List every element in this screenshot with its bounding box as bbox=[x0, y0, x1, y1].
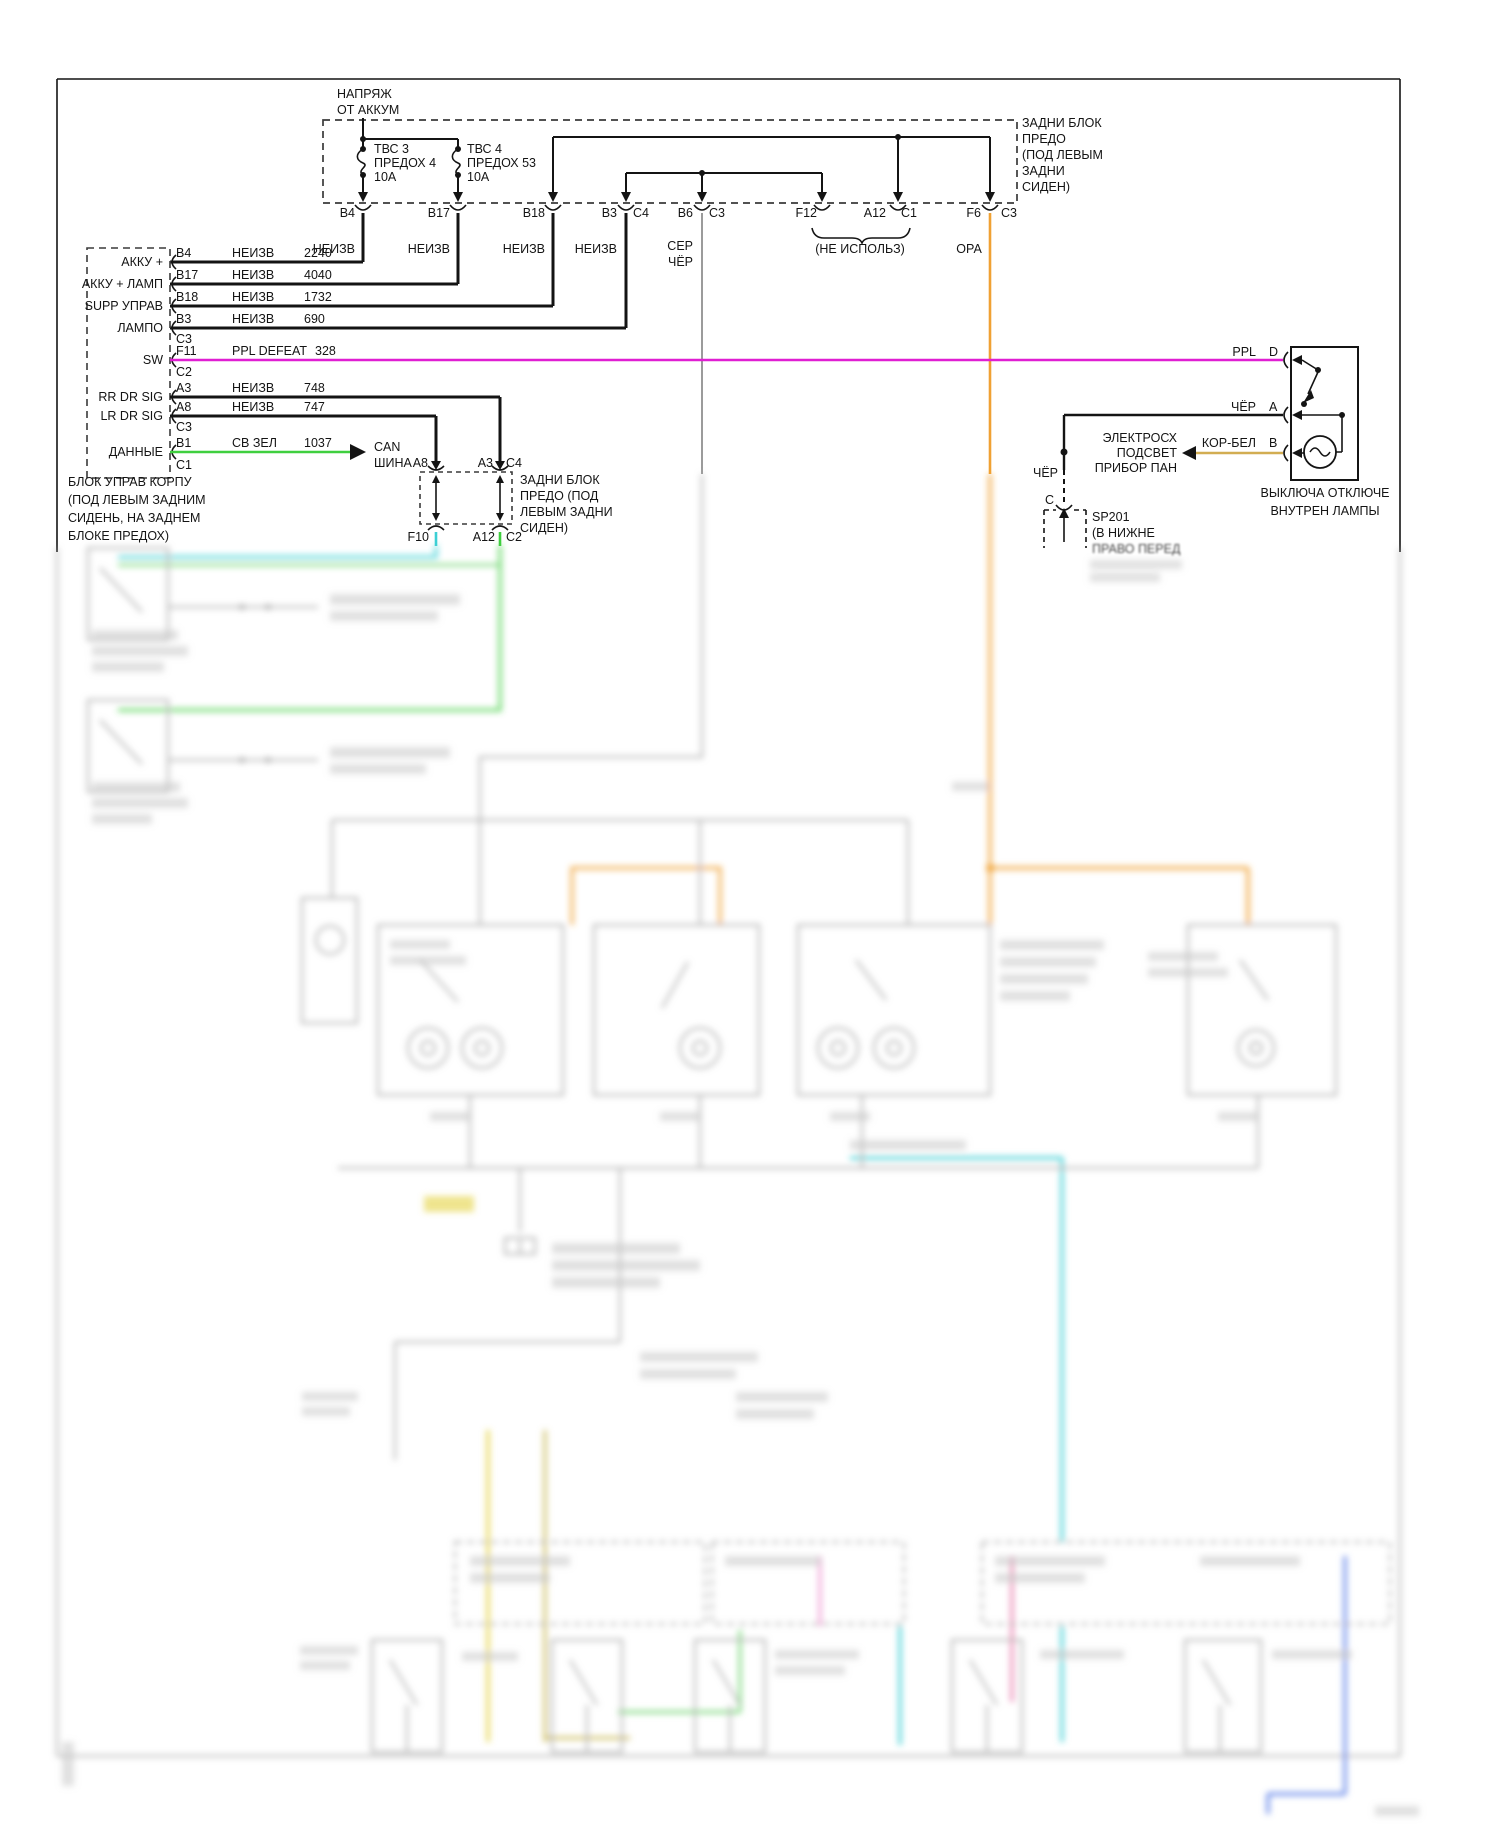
fuse-block-wire-colors-label-1: НЕИЗВ bbox=[408, 242, 450, 256]
switch-caption: ВЫКЛЮЧА ОТКЛЮЧЕВНУТРЕН ЛАМПЫ bbox=[1261, 486, 1390, 518]
fuse2-id: ПРЕДОХ 53 bbox=[467, 156, 536, 170]
bcm-rows-label-0: B4 bbox=[176, 246, 191, 260]
fuse1-rating: 10А bbox=[374, 170, 397, 184]
not-used-brace bbox=[812, 228, 910, 243]
ground-sp201-label-3: (В НИЖНЕ bbox=[1092, 526, 1155, 540]
bcm-rows-label-11: 690 bbox=[304, 312, 325, 326]
can-bus: CANШИНА bbox=[374, 440, 412, 470]
rear-fuse-block-label-label-4: СИДЕН) bbox=[1022, 180, 1070, 194]
offpage-arrow-icon bbox=[1182, 446, 1196, 460]
bcm-caption-label-3: БЛОКЕ ПРЕДОХ) bbox=[68, 529, 169, 543]
bcm-rows-label-15: 328 bbox=[315, 344, 336, 358]
fuse-block-wire-colors-label-3: НЕИЗВ bbox=[575, 242, 617, 256]
bcm-rows-label-9: B3 bbox=[176, 312, 191, 326]
panel-lamps-arrow-label-0: ЭЛЕКТРОСХ bbox=[1103, 431, 1178, 445]
mid-connector-label-label-3: СИДЕН) bbox=[520, 521, 568, 535]
fuse-block-wire-colors-label-6: (НЕ ИСПОЛЬЗ) bbox=[815, 242, 905, 256]
bcm-rows-label-17: A3 bbox=[176, 381, 191, 395]
bcm-rows-label-2: 2240 bbox=[304, 246, 332, 260]
bcm-signals-label-6: LR DR SIG bbox=[100, 409, 163, 423]
bcm-caption: БЛОК УПРАВ КОРПУ(ПОД ЛЕВЫМ ЗАДНИМСИДЕНЬ,… bbox=[68, 475, 206, 543]
dome-defeat-switch bbox=[1284, 347, 1358, 480]
fuse-block-wire-colors-label-7: ОРА bbox=[956, 242, 982, 256]
fuses: ТВС 3ПРЕДОХ 410АТВС 4ПРЕДОХ 5310А bbox=[374, 142, 536, 184]
panel-lamps-arrow-label-2: ПРИБОР ПАН bbox=[1095, 461, 1177, 475]
bcm-rows-label-19: 748 bbox=[304, 381, 325, 395]
bcm-rows-label-23: C3 bbox=[176, 420, 192, 434]
bcm-signals-label-4: SW bbox=[143, 353, 163, 367]
ground-sp201-label-0: ЧЁР bbox=[1033, 466, 1058, 480]
bcm-rows-label-4: НЕИЗВ bbox=[232, 268, 274, 282]
mid-connector-pins-label-0: A8 bbox=[413, 456, 428, 470]
mid-connector-pins-label-3: F10 bbox=[407, 530, 429, 544]
rear-fuse-block-label: ЗАДНИ БЛОКПРЕДО(ПОД ЛЕВЫМЗАДНИСИДЕН) bbox=[1022, 116, 1103, 194]
rear-fuse-block bbox=[323, 118, 1017, 243]
switch-pins-label-5: B bbox=[1269, 436, 1277, 450]
bcm-rows-label-21: НЕИЗВ bbox=[232, 400, 274, 414]
switch-caption-label-0: ВЫКЛЮЧА ОТКЛЮЧЕ bbox=[1261, 486, 1390, 500]
bcm-rows-label-24: B1 bbox=[176, 436, 191, 450]
fuse-block-pin-arrows bbox=[358, 192, 995, 202]
fuse-block-pins-label-8: A12 bbox=[864, 206, 886, 220]
ground-sp201-label-2: SP201 bbox=[1092, 510, 1130, 524]
bcm-signals-label-0: АККУ + bbox=[121, 255, 163, 269]
switch-pins-label-4: КОР-БЕЛ bbox=[1202, 436, 1256, 450]
bcm-rows-label-6: B18 bbox=[176, 290, 198, 304]
fuse-block-pins-label-6: C3 bbox=[709, 206, 725, 220]
bus-b18-f6 bbox=[553, 137, 990, 192]
bcm-rows-label-10: НЕИЗВ bbox=[232, 312, 274, 326]
mid-connector-pins-label-2: C4 bbox=[506, 456, 522, 470]
fuse1-id: ПРЕДОХ 4 bbox=[374, 156, 436, 170]
bcm-rows-label-26: 1037 bbox=[304, 436, 332, 450]
fuse-block-pins-label-10: F6 bbox=[966, 206, 981, 220]
rear-fuse-block-label-label-2: (ПОД ЛЕВЫМ bbox=[1022, 148, 1103, 162]
bcm-rows-label-13: F11 bbox=[176, 344, 197, 358]
bcm-caption-label-2: СИДЕНЬ, НА ЗАДНЕМ bbox=[68, 511, 200, 525]
bcm-rows-label-25: СВ ЗЕЛ bbox=[232, 436, 277, 450]
fuse-block-wire-colors-label-4: СЕР bbox=[667, 239, 693, 253]
bcm-rows-label-3: B17 bbox=[176, 268, 198, 282]
rear-fuse-block-label-label-0: ЗАДНИ БЛОК bbox=[1022, 116, 1102, 130]
lamp-icon bbox=[1304, 436, 1336, 468]
fuse-block-pins-label-5: B6 bbox=[678, 206, 693, 220]
bcm-rows-label-7: НЕИЗВ bbox=[232, 290, 274, 304]
blurred-lower-diagram bbox=[57, 474, 1419, 1816]
ground-sp201: ЧЁРCSP201(В НИЖНЕПРАВО ПЕРЕД bbox=[1033, 466, 1181, 556]
can-bus-label-1: ШИНА bbox=[374, 456, 412, 470]
fuse2-rating: 10А bbox=[467, 170, 490, 184]
bus-b3-f12 bbox=[626, 173, 822, 192]
ground-sp201-label-4: ПРАВО ПЕРЕД bbox=[1092, 542, 1181, 556]
battery-feed: НАПРЯЖОТ АККУМ bbox=[337, 87, 399, 117]
bcm-rows-label-16: C2 bbox=[176, 365, 192, 379]
panel-lamps-arrow-label-1: ПОДСВЕТ bbox=[1117, 446, 1178, 460]
battery-feed-line1: НАПРЯЖ bbox=[337, 87, 392, 101]
bcm-signals: АККУ +АККУ + ЛАМПSUPP УПРАВЛАМПОSWRR DR … bbox=[82, 255, 163, 459]
battery-feed-line2: ОТ АККУМ bbox=[337, 103, 399, 117]
diagram-text-layer: НАПРЯЖОТ АККУМТВС 3ПРЕДОХ 410АТВС 4ПРЕДО… bbox=[68, 87, 1389, 556]
fuse-block-pins-label-7: F12 bbox=[795, 206, 817, 220]
switch-pins-label-2: ЧЁР bbox=[1231, 400, 1256, 414]
mid-connector-label-label-0: ЗАДНИ БЛОК bbox=[520, 473, 600, 487]
fuse-symbol-tbc3 bbox=[357, 146, 366, 192]
bcm-rows-label-20: A8 bbox=[176, 400, 191, 414]
bcm-rows-label-27: C1 bbox=[176, 458, 192, 472]
panel-lamps-arrow: ЭЛЕКТРОСХПОДСВЕТПРИБОР ПАН bbox=[1095, 431, 1178, 475]
bcm-rows-label-22: 747 bbox=[304, 400, 325, 414]
fuse1-name: ТВС 3 bbox=[374, 142, 409, 156]
mid-connector-label: ЗАДНИ БЛОКПРЕДО (ПОДЛЕВЫМ ЗАДНИСИДЕН) bbox=[520, 473, 613, 535]
bcm-signals-label-3: ЛАМПО bbox=[117, 321, 163, 335]
switch-caption-label-1: ВНУТРЕН ЛАМПЫ bbox=[1270, 504, 1379, 518]
mid-connector bbox=[420, 466, 512, 546]
fuse-block-pins: B4B17B18B3C4B6C3F12A12C1F6C3 bbox=[340, 206, 1017, 220]
fuse-block-pins-label-11: C3 bbox=[1001, 206, 1017, 220]
bcm-caption-label-1: (ПОД ЛЕВЫМ ЗАДНИМ bbox=[68, 493, 206, 507]
fuse-block-pins-label-1: B17 bbox=[428, 206, 450, 220]
bcm-rows-label-5: 4040 bbox=[304, 268, 332, 282]
can-bus-label-0: CAN bbox=[374, 440, 400, 454]
fuse-symbol-tbc4 bbox=[452, 146, 461, 192]
bcm-rows-label-14: PPL DEFEAT bbox=[232, 344, 307, 358]
fuse-block-wire-colors-label-2: НЕИЗВ bbox=[503, 242, 545, 256]
fuse-block-pins-label-9: C1 bbox=[901, 206, 917, 220]
fuse-block-pins-label-2: B18 bbox=[523, 206, 545, 220]
bcm-signals-label-7: ДАННЫЕ bbox=[109, 445, 163, 459]
switch-pins-label-0: PPL bbox=[1232, 345, 1256, 359]
mid-connector-pins-label-1: A3 bbox=[478, 456, 493, 470]
fuse-block-pins-label-4: C4 bbox=[633, 206, 649, 220]
bcm-signals-label-5: RR DR SIG bbox=[98, 390, 163, 404]
bcm-signals-label-2: SUPP УПРАВ bbox=[85, 299, 163, 313]
wiring-diagram-page: НАПРЯЖОТ АККУМТВС 3ПРЕДОХ 410АТВС 4ПРЕДО… bbox=[0, 0, 1500, 1828]
ground-sp201-label-1: C bbox=[1045, 493, 1054, 507]
bcm-rows-label-1: НЕИЗВ bbox=[232, 246, 274, 260]
fuse-block-pins-label-0: B4 bbox=[340, 206, 355, 220]
bcm-rows-label-18: НЕИЗВ bbox=[232, 381, 274, 395]
mid-connector-label-label-1: ПРЕДО (ПОД bbox=[520, 489, 599, 503]
bcm-caption-label-0: БЛОК УПРАВ КОРПУ bbox=[68, 475, 192, 489]
fuse-block-pins-label-3: B3 bbox=[602, 206, 617, 220]
rear-fuse-block-label-label-3: ЗАДНИ bbox=[1022, 164, 1065, 178]
mid-connector-pins-label-4: A12 bbox=[473, 530, 495, 544]
switch-pins-label-1: D bbox=[1269, 345, 1278, 359]
door-signal-wires bbox=[170, 397, 505, 470]
fuse-block-wire-colors-label-5: ЧЁР bbox=[668, 255, 693, 269]
rear-fuse-block-label-label-1: ПРЕДО bbox=[1022, 132, 1066, 146]
bcm-signals-label-1: АККУ + ЛАМП bbox=[82, 277, 163, 291]
can-arrow-icon bbox=[350, 444, 366, 460]
switch-pins-label-3: A bbox=[1269, 400, 1278, 414]
mid-connector-label-label-2: ЛЕВЫМ ЗАДНИ bbox=[520, 505, 613, 519]
bcm-rows-label-8: 1732 bbox=[304, 290, 332, 304]
fuse2-name: ТВС 4 bbox=[467, 142, 502, 156]
fuse-block-wire-colors: НЕИЗВНЕИЗВНЕИЗВНЕИЗВСЕРЧЁР(НЕ ИСПОЛЬЗ)ОР… bbox=[313, 239, 983, 269]
